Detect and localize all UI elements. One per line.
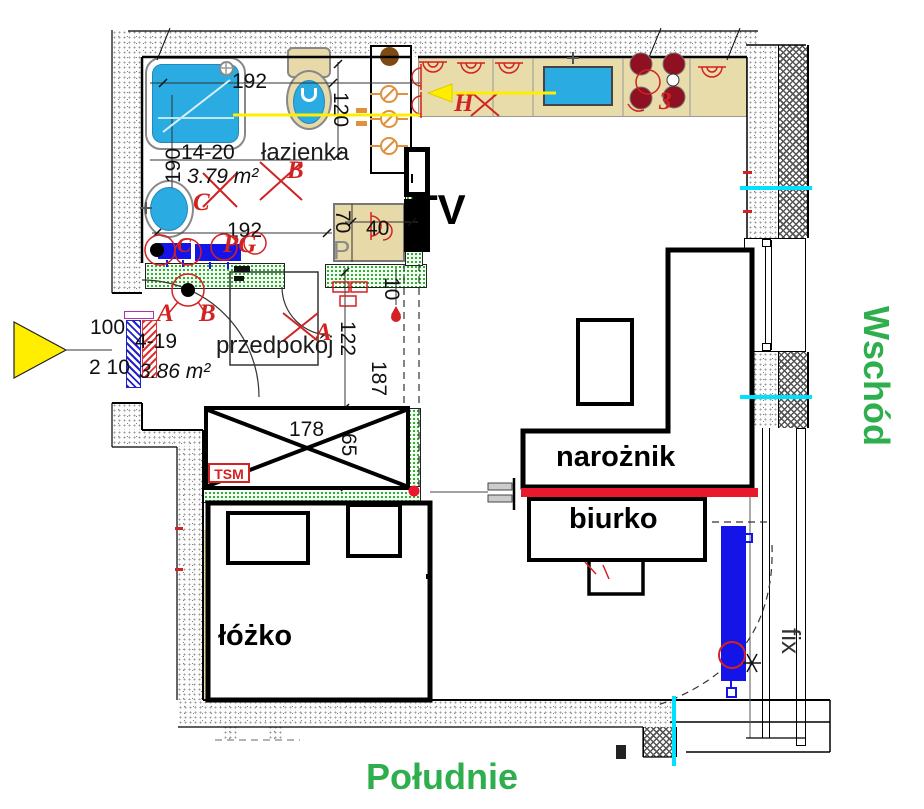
wall-right-mid — [748, 352, 778, 428]
asterisk-mark — [743, 654, 761, 672]
desk-chair — [589, 549, 643, 594]
electrical-symbols — [145, 62, 752, 668]
window-east-hinge-top — [762, 239, 771, 247]
compass-east-label: Wschód — [855, 306, 897, 446]
wall-top — [128, 30, 758, 57]
desk-label: biurko — [569, 503, 658, 536]
radiator-valve-circle — [719, 642, 745, 668]
dim-entry-wall-range: 4-19 — [135, 330, 177, 354]
partition-bath-left — [145, 263, 285, 289]
dim-entry-door-height: 2 10 — [89, 356, 130, 380]
red-wall-line — [521, 488, 758, 497]
room-label-bathroom: łazienka — [261, 139, 349, 167]
partition-bath-right — [325, 264, 427, 288]
wall-right-mid-insulation — [778, 352, 809, 428]
sofa-label: narożnik — [556, 441, 675, 474]
wall-bottom-tab1 — [223, 725, 237, 739]
section-marker — [616, 745, 626, 759]
compass-south-label: Południe — [366, 756, 518, 798]
radiator-room-icon — [721, 526, 752, 697]
washbasin-inner — [150, 187, 188, 231]
door-hardware-icon — [430, 478, 514, 510]
kitchen-sink — [543, 66, 613, 106]
room-label-hallway: przedpokój — [216, 332, 333, 360]
dim-entry-door-width: 100 — [90, 316, 125, 340]
floor-plan: TSM 192 120 190 14-20 łazienka 3.79 m² B… — [0, 0, 924, 809]
tv-label: TV — [412, 186, 466, 234]
marker-bathroom-c2: C — [177, 233, 191, 258]
dim-washer-depth: 70 — [330, 210, 354, 233]
pillow-2 — [348, 505, 400, 556]
window-east-hinge-bottom — [762, 343, 771, 351]
dim-hall-width: 122 — [335, 321, 359, 356]
wall-bottom — [178, 700, 674, 727]
fix-window-label: fix — [775, 628, 806, 654]
window-east — [744, 238, 806, 352]
bed — [208, 503, 430, 700]
dim-partition: 10 — [379, 277, 403, 300]
washer-label: P — [333, 235, 350, 266]
dim-bath-top-width: 192 — [232, 70, 267, 94]
window-east-glazing — [765, 240, 772, 350]
area-label-hallway: 3.86 m² — [139, 360, 210, 384]
drop-icon — [391, 306, 401, 322]
chair-marks — [585, 562, 609, 579]
entry-door-top-mark — [124, 311, 154, 319]
shaft-vent-icon — [380, 47, 399, 66]
pillow — [228, 513, 308, 563]
partition-under-wardrobe — [203, 486, 421, 503]
dim-wardrobe-depth: 65 — [336, 433, 360, 456]
balcony-door-swing-arc — [655, 545, 772, 706]
marker-hall-a1: A — [157, 300, 174, 328]
bed-side-finish — [204, 530, 209, 700]
wall-bottom-insulation — [643, 727, 677, 757]
area-label-bathroom: 3.79 m² — [187, 165, 258, 189]
dim-washer-width: 40 — [366, 217, 389, 241]
marker-bathroom-c: C — [193, 189, 210, 217]
entry-arrow-icon — [14, 322, 66, 378]
marker-kitchen-h: H — [454, 90, 473, 118]
dim-wardrobe-width: 178 — [289, 418, 324, 442]
bed-label: łóżko — [218, 620, 292, 653]
lamp-icon-bathroom — [145, 235, 175, 265]
wardrobe-tag-box: TSM — [208, 463, 250, 483]
dim-hall-length: 187 — [366, 361, 390, 396]
wall-right-upper — [748, 45, 778, 238]
fix-window-frame — [796, 428, 806, 746]
toilet-bowl-inner — [293, 80, 325, 124]
ward-tag-label: TSM — [214, 466, 244, 482]
marker-hall-b: B — [199, 300, 216, 328]
hob-burner-count: 3 — [659, 88, 672, 116]
wall-left-lower — [177, 447, 203, 700]
dim-bath-wall-range: 14-20 — [181, 141, 235, 165]
fix-window-glazing — [762, 428, 770, 738]
wall-left-step — [112, 430, 203, 447]
marker-bathroom-pg: PG — [223, 231, 256, 259]
wall-bottom-tab2 — [268, 725, 283, 739]
coffee-table — [578, 320, 632, 404]
wall-right-upper-insulation — [778, 45, 809, 238]
wall-left-upper — [112, 30, 142, 293]
marker-bathroom-b: B — [287, 157, 304, 185]
dim-bath-right-height: 120 — [328, 92, 352, 127]
floor-dot — [426, 574, 431, 579]
